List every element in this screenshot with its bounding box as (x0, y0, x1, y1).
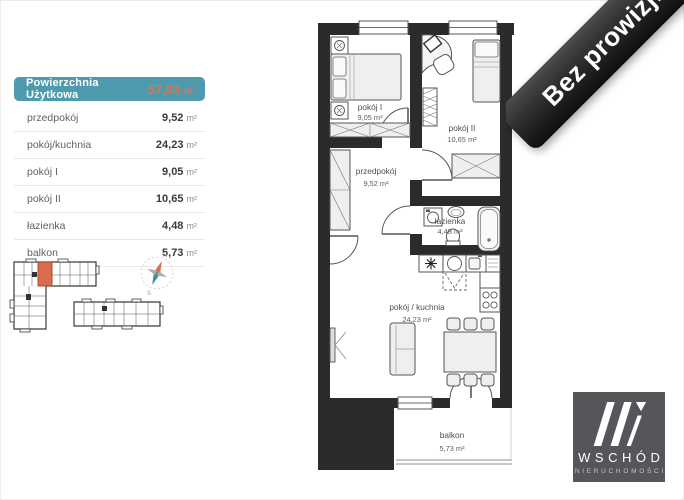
logo-name: WSCHÓD (574, 450, 665, 465)
room-label: łazienka (27, 220, 66, 232)
compass-south-label: S (147, 291, 151, 297)
svg-text:4,48 m²: 4,48 m² (437, 227, 463, 236)
logo-w-mark (591, 402, 647, 446)
area-table-title: Powierzchnia Użytkowa (26, 77, 148, 101)
area-table: Powierzchnia Użytkowa 57,93 m² przedpokó… (14, 77, 205, 267)
floor-plan: pokój I 9,05 m² pokój II 10,65 m² przedp… (316, 10, 516, 474)
svg-text:10,65 m²: 10,65 m² (447, 135, 477, 144)
tv (330, 328, 335, 362)
table-row: pokój I 9,05 m² (14, 159, 205, 186)
no-commission-ribbon: Bez prowizji (506, 0, 684, 152)
room-area: 4,48 m² (162, 220, 197, 232)
table-row: pokój/kuchnia 24,23 m² (14, 132, 205, 159)
ribbon-label: Bez prowizji (536, 0, 668, 112)
counter-unit (443, 255, 466, 272)
room-label: przedpokój (27, 112, 78, 124)
table-row: przedpokój 9,52 m² (14, 105, 205, 132)
door-lazienka (382, 206, 410, 234)
chair (481, 374, 494, 386)
chair (464, 318, 477, 330)
label-pokoj-kuchnia: pokój / kuchnia (389, 302, 445, 312)
listing-flyer: { "area_table": { "header": { "label": "… (0, 0, 684, 500)
adjacent-building-mass (318, 408, 394, 470)
room-label: pokój II (27, 193, 61, 205)
label-lazienka: łazienka (435, 216, 466, 226)
site-plan: N S (2, 250, 174, 342)
svg-text:24,23 m²: 24,23 m² (402, 315, 432, 324)
table-row: pokój II 10,65 m² (14, 186, 205, 213)
chair (447, 318, 460, 330)
furniture-pokoj-1 (330, 37, 410, 137)
total-area-value: 57,93 m² (148, 82, 196, 97)
dining-table (444, 332, 496, 372)
compass-north-label: N (163, 253, 167, 259)
svg-text:9,52 m²: 9,52 m² (363, 179, 389, 188)
room-area: 24,23 m² (156, 139, 197, 151)
pillow (475, 42, 498, 57)
room-label: pokój/kuchnia (27, 139, 91, 151)
cooktop (480, 288, 500, 312)
chair (464, 374, 477, 386)
svg-text:5,73 m²: 5,73 m² (439, 444, 465, 453)
room-label: pokój I (27, 166, 58, 178)
agency-logo: WSCHÓD NIERUCHOMOŚCI (573, 392, 665, 482)
area-table-header: Powierzchnia Użytkowa 57,93 m² (14, 77, 205, 101)
furniture-przedpokoj (330, 150, 350, 230)
pillow (333, 57, 346, 76)
door-pokoj-2 (422, 150, 452, 180)
building-b-outline (74, 299, 163, 329)
area-table-rows: przedpokój 9,52 m² pokój/kuchnia 24,23 m… (14, 105, 205, 267)
label-pokoj-1: pokój I (358, 102, 382, 112)
room-area: 10,65 m² (156, 193, 197, 205)
furniture-pokoj-2 (422, 35, 500, 178)
svg-text:9,05 m²: 9,05 m² (357, 113, 383, 122)
room-area: 9,52 m² (162, 112, 197, 124)
drawer-unit (486, 255, 500, 272)
door-entrance (330, 236, 358, 264)
corner-ribbon-wrap: Bez prowizji (506, 0, 684, 178)
label-balkon: balkon (440, 430, 465, 440)
compass: N S (141, 253, 173, 297)
room-area: 9,05 m² (162, 166, 197, 178)
furniture-living-room (330, 318, 496, 386)
label-przedpokoj: przedpokój (356, 166, 397, 176)
logo-subtitle: NIERUCHOMOŚCI (572, 468, 666, 475)
highlighted-unit (38, 262, 52, 286)
chair (447, 374, 460, 386)
label-pokoj-2: pokój II (449, 123, 476, 133)
pillow (333, 79, 346, 98)
counter (480, 272, 500, 288)
table-row: łazienka 4,48 m² (14, 213, 205, 240)
chair (481, 318, 494, 330)
